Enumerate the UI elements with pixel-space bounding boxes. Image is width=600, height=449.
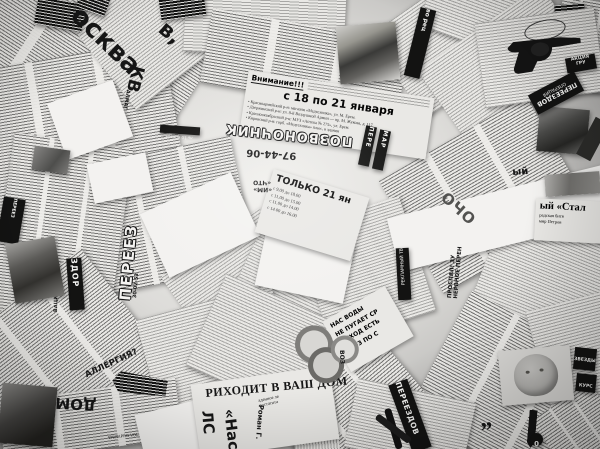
person-photo <box>336 21 401 84</box>
kurs-text: КУРС <box>579 383 593 389</box>
label-voz: ВОЗ <box>338 350 344 364</box>
headline-yi: ый <box>512 167 529 178</box>
band-reklamny: РЕКЛАМНЫЙ ТВ <box>396 248 412 301</box>
black-date-bar: ль 10 января <box>160 125 200 136</box>
black-kurs-box: КУРС <box>575 373 597 393</box>
stalingrad-article: ый «Стал радская битв мир Петров <box>534 198 600 244</box>
headline-ls: ЛС <box>199 410 216 435</box>
article-photo-strip <box>544 171 600 197</box>
headline-dom-upside-down: ДОМ <box>55 395 97 412</box>
black-zvezdy-box: ЗВЕЗДЫ <box>573 347 597 371</box>
phone-number-upside-down: 97-44-06 <box>246 147 297 160</box>
small-photo <box>32 146 71 175</box>
quote-chto: «ЧТО <box>253 179 271 185</box>
headline-nas: «Нас <box>221 408 241 449</box>
newspaper-collage-photo: осква в, КВ АЛМАГ ль 10 января Внимание!… <box>0 0 600 449</box>
left-wedge-text: ПЕРЕЕЗ <box>9 198 17 218</box>
band-reklamny-text: РЕКЛАМНЫЙ ТВ <box>400 248 407 285</box>
zero-badge: 0 <box>530 433 543 446</box>
face-shape <box>512 352 559 398</box>
band-mar-text: МАР <box>378 130 389 149</box>
band-zdor-text: ЗДОР <box>69 258 80 288</box>
dark-photo <box>0 383 58 448</box>
zvezdy-text: ЗВЕЗДЫ <box>574 357 596 364</box>
rec-strip-text: во рец <box>420 8 432 32</box>
quote-im: «ИМ» <box>253 186 272 192</box>
face-sketch-photo <box>498 345 575 406</box>
zero-badge-text: 0 <box>534 440 539 448</box>
people-photo <box>5 236 65 304</box>
pereez-phone: 30-02-53 <box>133 273 140 298</box>
